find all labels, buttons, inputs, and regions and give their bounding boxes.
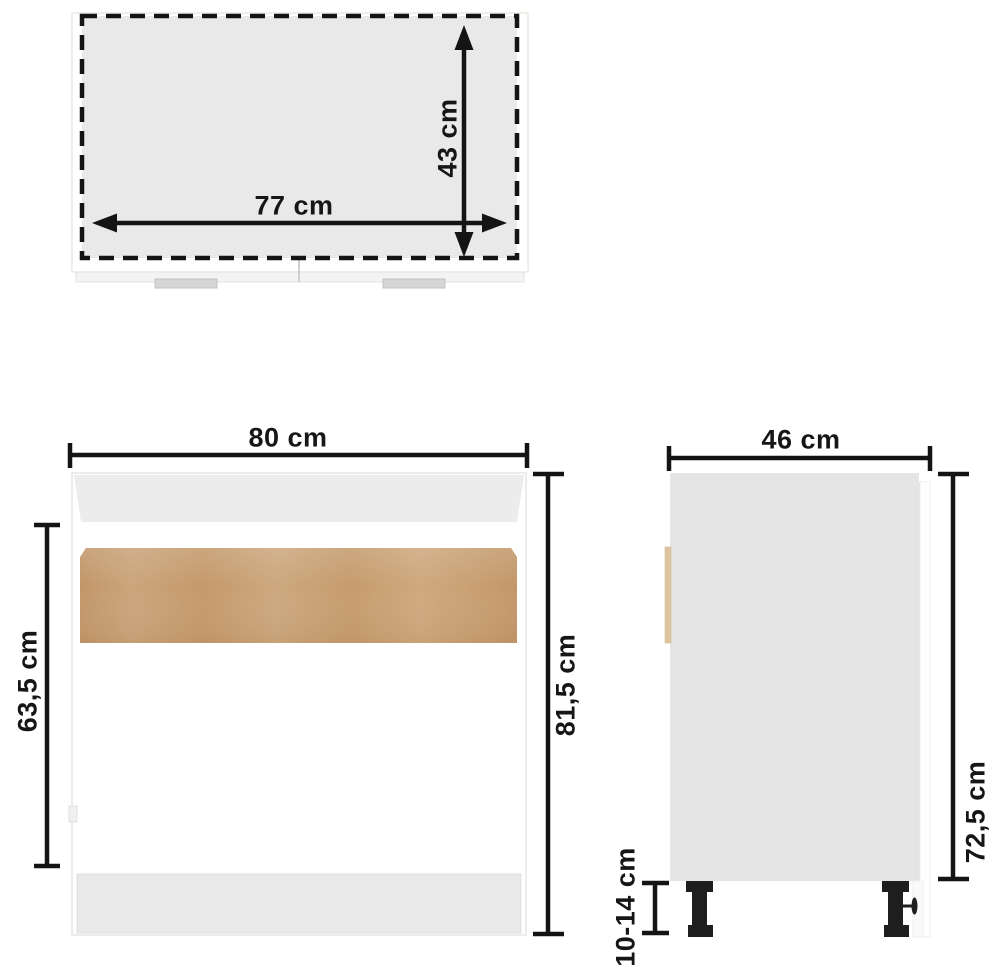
front-view-plinth xyxy=(77,874,521,933)
front-view-width-label: 80 cm xyxy=(248,423,327,454)
side-view-back-panel-edge xyxy=(665,547,671,643)
front-view-total-height-label: 81,5 cm xyxy=(551,634,582,737)
front-view-door-height-label: 63,5 cm xyxy=(13,630,44,733)
top-view-width-label: 77 cm xyxy=(254,191,333,222)
side-view xyxy=(642,446,969,937)
side-view-leg-height-label: 10-14 cm xyxy=(611,847,642,967)
dimension-diagram: 77 cm 43 cm 80 cm 63,5 cm 81,5 cm 46 cm … xyxy=(0,0,1000,980)
diagram-vector-layer xyxy=(0,0,1000,980)
front-view-cabinet-body xyxy=(72,473,526,935)
side-view-body-height-label: 72,5 cm xyxy=(961,761,992,864)
side-view-leg-height-dimension xyxy=(642,883,669,933)
top-view-handle-left xyxy=(155,279,217,288)
front-view-top-rail xyxy=(74,475,524,522)
front-view-hinge-tab xyxy=(69,806,77,822)
side-view-door-strip xyxy=(920,482,930,937)
side-view-leg-left xyxy=(686,881,713,937)
side-view-leg-screw xyxy=(903,898,918,915)
side-view-panel xyxy=(670,473,930,881)
side-view-leg-right xyxy=(882,881,909,937)
side-view-depth-label: 46 cm xyxy=(761,425,840,456)
front-view xyxy=(34,443,564,935)
front-view-wood-panel-shading xyxy=(80,548,517,643)
side-view-top-notch xyxy=(919,473,930,482)
top-view-depth-label: 43 cm xyxy=(433,98,464,177)
top-view-handle-right xyxy=(383,279,445,288)
